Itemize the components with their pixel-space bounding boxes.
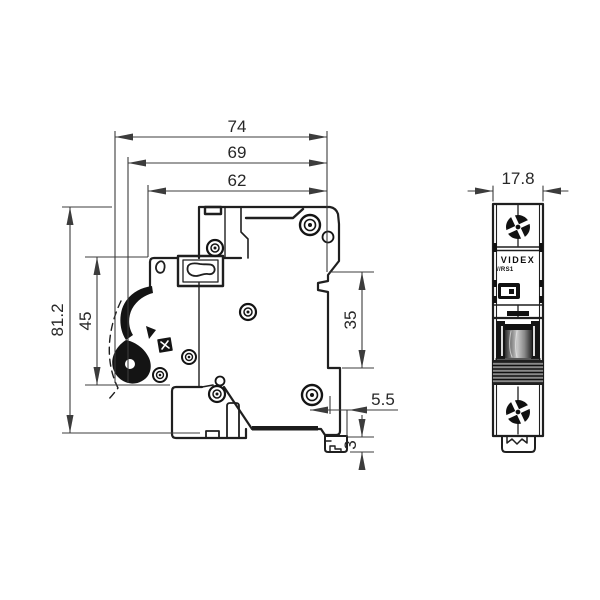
pivot-hole-icon (216, 377, 225, 386)
rivet-icon (153, 368, 167, 382)
dimension-annotations: 74 69 62 81.2 45 35 5.5 3 17.8 (48, 117, 535, 470)
toggle-bracket-right (531, 321, 540, 359)
screw-icon (503, 397, 534, 428)
toggle-lever-side (187, 263, 214, 276)
rivet-icon (209, 386, 225, 402)
front-view-drawing: VIDEX //RS1 (468, 186, 568, 452)
dim-front-width (468, 186, 568, 201)
ridged-band (493, 361, 543, 384)
screw-icon (503, 212, 534, 243)
lever-pawl (146, 326, 156, 339)
technical-drawing-page: 74 69 62 81.2 45 35 5.5 3 17.8 (0, 0, 600, 600)
dim-height-total (67, 207, 74, 433)
top-tab (205, 207, 221, 214)
rivet-icon (182, 350, 196, 364)
toggle-slot-bar (507, 311, 529, 316)
front-clip-foot (502, 436, 535, 452)
dim-label-45: 45 (76, 312, 95, 331)
toggle-switch-front (493, 311, 543, 359)
cover-seam-underline (246, 209, 303, 218)
toggle-bracket-left (496, 321, 505, 359)
dim-label-69: 69 (228, 143, 247, 162)
bottom-shadow-band (252, 426, 318, 431)
mcb-dimension-diagram: 74 69 62 81.2 45 35 5.5 3 17.8 (0, 0, 600, 600)
dim-depth-total (115, 134, 327, 141)
lever-hole (125, 359, 135, 369)
dim-label-17-8: 17.8 (501, 169, 534, 188)
brand-logo: VIDEX (501, 255, 536, 265)
dim-label-62: 62 (228, 171, 247, 190)
dim-label-74: 74 (228, 117, 247, 136)
rivet-icon (300, 215, 320, 235)
mount-hole-icon (323, 232, 334, 243)
rivet-icons (153, 215, 334, 405)
dim-label-81-2: 81.2 (48, 303, 67, 336)
divider-notch-left (493, 243, 497, 252)
toggle-lever-cap (505, 324, 532, 330)
dim-label-5-5: 5.5 (371, 390, 395, 409)
divider-notch-right (539, 243, 543, 252)
model-label: //RS1 (497, 267, 514, 273)
toggle-window (178, 256, 223, 286)
cover-seam-step (241, 207, 248, 258)
dim-label-3: 3 (341, 440, 360, 449)
trip-lever-assembly (112, 286, 156, 384)
divider-lines (493, 247, 543, 251)
dim-label-35: 35 (341, 311, 360, 330)
teardrop-hole (156, 261, 165, 273)
status-indicator-window (498, 283, 520, 299)
rivet-icon (240, 304, 256, 320)
rivet-icon (207, 240, 223, 256)
latch-nut-icon (158, 338, 172, 352)
side-view-drawing (107, 207, 347, 452)
rivet-icon (302, 385, 322, 405)
